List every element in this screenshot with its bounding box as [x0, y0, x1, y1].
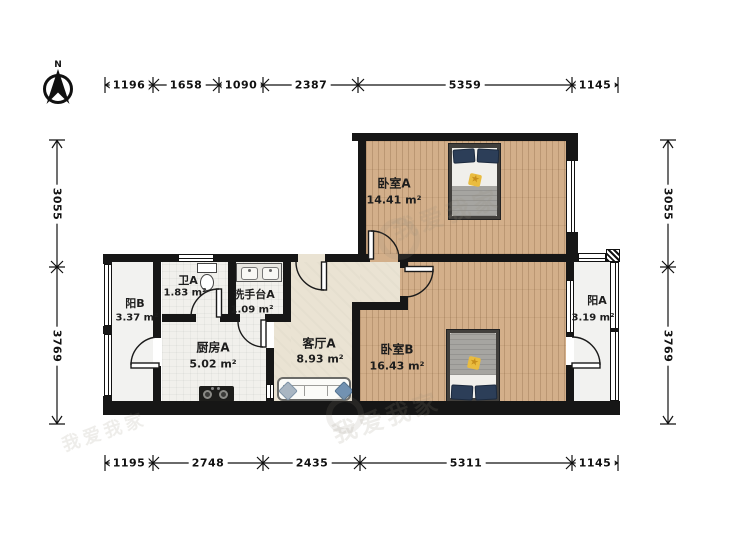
balcony-a-door-arc [572, 337, 600, 365]
bathroom-label: 卫A [178, 272, 198, 288]
bedroom-b-door-arc [405, 269, 433, 297]
dim-right-1: 3055 [662, 185, 675, 224]
bedroom-b-label: 卧室B [380, 341, 413, 358]
kitchen-label: 厨房A [196, 339, 229, 356]
dim-top-2: 1658 [167, 79, 206, 92]
bathroom-door-leaf [217, 289, 222, 317]
bathroom-area: 1.83 m² [164, 288, 207, 299]
kitchen-area: 5.02 m² [189, 358, 236, 371]
dim-top-5: 5359 [446, 79, 485, 92]
washbasin-area: 1.09 m² [231, 305, 274, 316]
living-room-label: 客厅A [302, 335, 335, 352]
dim-right-2: 3769 [662, 327, 675, 366]
balcony-b-area: 3.37 m² [116, 313, 159, 324]
balcony-b-door-arc [131, 337, 159, 365]
north-compass-icon: N [45, 60, 72, 104]
bedroom-b-door-leaf [405, 267, 433, 272]
watermark-logo-circle [378, 218, 420, 260]
north-label: N [54, 60, 62, 70]
dim-bottom-2: 2748 [189, 457, 228, 470]
entry-door-leaf [322, 262, 327, 290]
balcony-b-door-leaf [131, 363, 159, 368]
dim-left-1: 3055 [51, 185, 64, 224]
kitchen-door-arc [238, 320, 263, 347]
dim-bottom-5: 1145 [576, 457, 615, 470]
watermark-logo-circle [326, 396, 364, 434]
bedroom-b-area: 16.43 m² [370, 360, 425, 373]
bedroom-a-door-leaf [369, 231, 374, 259]
kitchen-door-leaf [261, 320, 266, 347]
balcony-a-door-leaf [572, 363, 600, 368]
entry-door-arc [296, 262, 324, 290]
dim-top-3: 1090 [222, 79, 261, 92]
dim-top-4: 2387 [292, 79, 331, 92]
dim-bottom-1: 1195 [110, 457, 149, 470]
washbasin-label: 洗手台A [233, 286, 275, 302]
living-room-area: 8.93 m² [296, 353, 343, 366]
dim-top-1: 1196 [110, 79, 149, 92]
balcony-a-area: 3.19 m² [572, 313, 615, 324]
floor-plan: ★ ★ [0, 0, 729, 547]
bedroom-a-area: 14.41 m² [367, 194, 422, 207]
dim-bottom-4: 5311 [447, 457, 486, 470]
bedroom-a-label: 卧室A [377, 175, 410, 192]
dim-bottom-3: 2435 [293, 457, 332, 470]
dim-left-2: 3769 [51, 327, 64, 366]
dim-top-6: 1145 [576, 79, 615, 92]
balcony-b-label: 阳B [125, 295, 144, 311]
balcony-a-label: 阳A [587, 292, 607, 308]
